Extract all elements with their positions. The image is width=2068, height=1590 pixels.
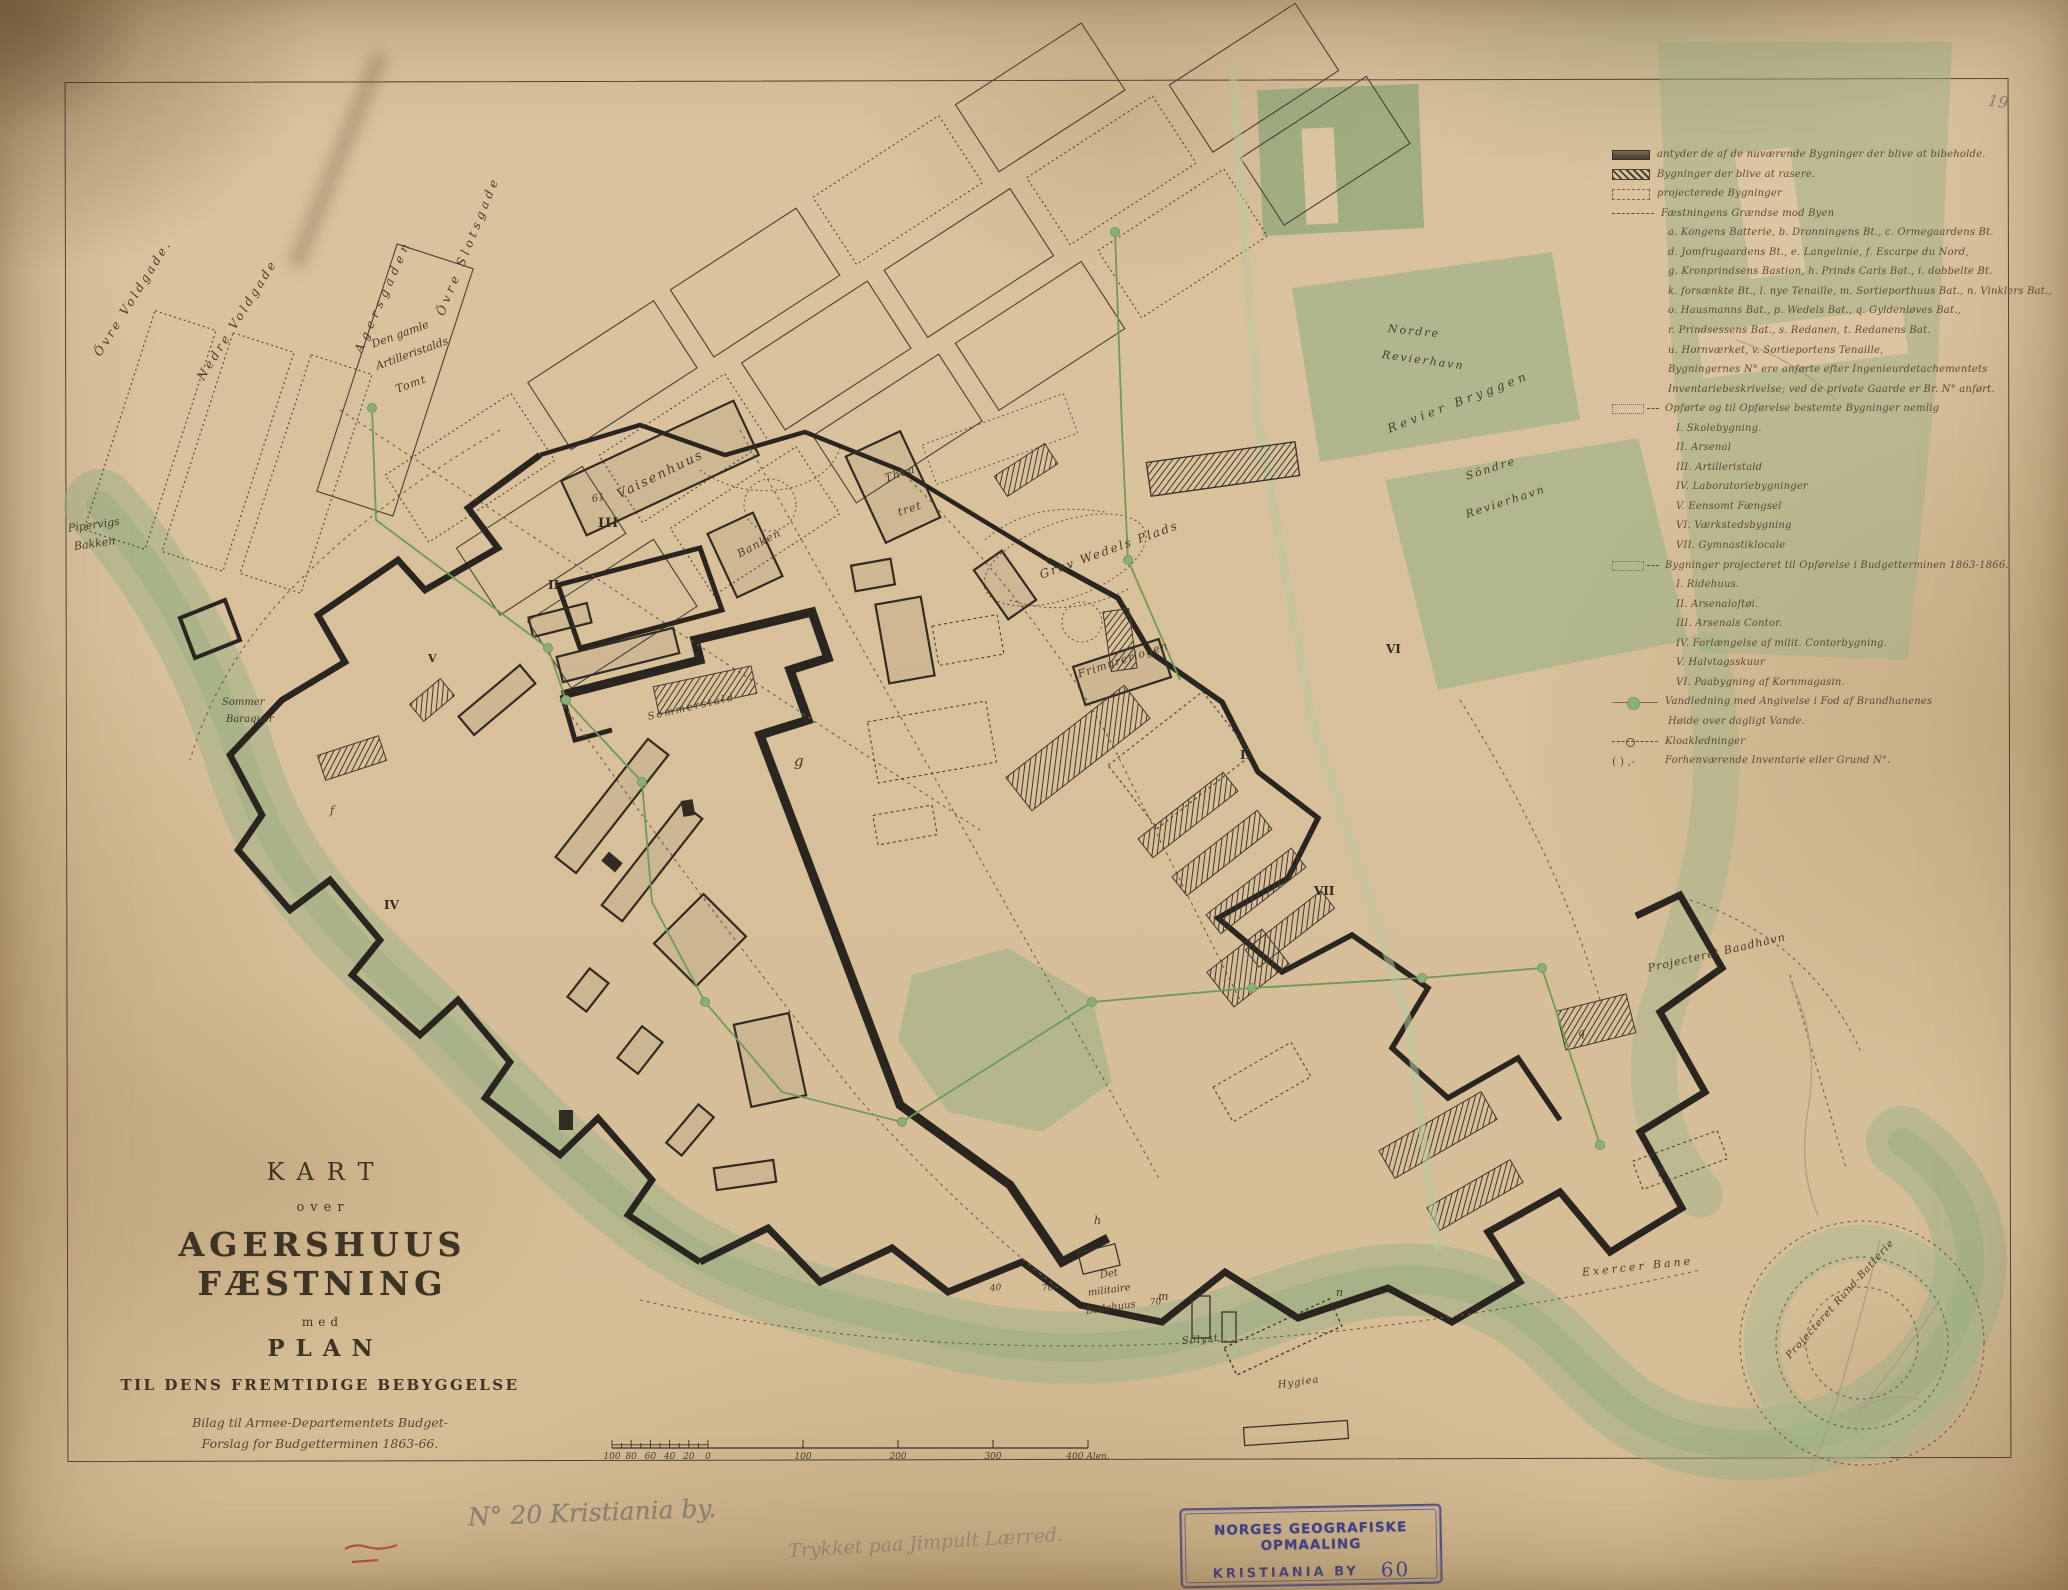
map-label: IV <box>384 898 399 912</box>
legend-row: I. Skolebygning. <box>1612 420 1762 438</box>
hydrant-dot <box>1124 556 1133 565</box>
legend-symbol-sewer <box>1612 741 1658 742</box>
city-block <box>240 355 372 594</box>
city-block <box>670 208 839 357</box>
title-over: over <box>126 1200 520 1215</box>
city-block <box>385 393 554 542</box>
map-label: h <box>1094 1214 1101 1227</box>
legend-text: antyder de af de nuværende Bygninger der… <box>1657 149 1986 161</box>
building-to-raze <box>1556 994 1636 1050</box>
stamp-agency: NORGES GEOGRAFISKE OPMAALING <box>1186 1519 1437 1556</box>
building-to-raze <box>318 736 387 781</box>
map-label: II <box>548 578 559 592</box>
scale-tick-label: 300 <box>984 1452 1001 1462</box>
map-label: I <box>1240 748 1246 762</box>
city-blocks <box>84 0 1410 710</box>
map-label: V <box>428 652 437 665</box>
legend-text: V. Eensomt Fængsel <box>1676 501 1782 513</box>
map-label: f <box>330 804 334 817</box>
building-to-raze <box>410 679 455 722</box>
legend-row: Opførte og til Opførelse bestemte Bygnin… <box>1612 400 1939 418</box>
legend-row: II. Arsenaloftøi. <box>1612 596 1758 614</box>
legend-text: V. Halvtagsskuur <box>1676 657 1765 669</box>
legend-row: VI. Paabygning af Kornmagasin. <box>1612 674 1845 692</box>
scale-tick-label: 20 <box>683 1452 694 1462</box>
scale-tick-label: 400 Alen. <box>1066 1452 1109 1462</box>
building-projected <box>932 615 1004 666</box>
legend-text: Bygninger der blive at rasere. <box>1657 169 1815 181</box>
building-existing <box>974 551 1036 620</box>
title-bilag-line1: Bilag til Armee-Departementets Budget- <box>120 1412 520 1433</box>
map-label: III <box>598 516 619 531</box>
legend-symbol-bar-hatch <box>1612 169 1650 180</box>
map-label: Sommer <box>222 697 265 708</box>
legend-row: Inventariebeskrivelse; ved de private Ga… <box>1612 381 1995 399</box>
legend-text: o. Hausmanns Bat., p. Wedels Bat., q. Gy… <box>1668 305 1961 317</box>
legend-text: Opførte og til Opførelse bestemte Bygnin… <box>1665 403 1939 415</box>
hydrant-dot <box>1088 998 1097 1007</box>
stamp-city: KRISTIANIA BY <box>1213 1564 1359 1582</box>
legend-row: V. Halvtagsskuur <box>1612 654 1765 672</box>
legend-row: u. Hornværket, v. Sortieportens Tenaille… <box>1612 342 1884 360</box>
legend-row: Høide over dagligt Vande. <box>1612 713 1805 731</box>
legend-text: I. Ridehuus. <box>1676 579 1739 591</box>
legend-row: Bygninger der blive at rasere. <box>1612 166 1815 184</box>
building-existing <box>567 968 608 1011</box>
legend-row: Bygningernes N° ere anførte efter Ingeni… <box>1612 361 1988 379</box>
legend-text: IV. Forlængelse af milit. Contorbygning. <box>1676 638 1887 650</box>
legend-text: Forhenværende Inventarie eller Grund N°. <box>1665 755 1890 767</box>
building-existing <box>666 1104 713 1155</box>
scale-tick-label: 40 <box>664 1452 675 1462</box>
legend-text: II. Arsenal <box>1676 442 1731 454</box>
legend-text: Fæstningens Grændse mod Byen <box>1661 208 1834 220</box>
legend-row: III. Artilleristald <box>1612 459 1762 477</box>
building-projected <box>1213 1042 1311 1122</box>
title-med: med <box>125 1315 520 1329</box>
map-label: VII <box>1314 884 1335 898</box>
map-label: 40 <box>990 1283 1002 1294</box>
hydrant-dot <box>1596 1141 1605 1150</box>
hydrant-dot <box>701 998 710 1007</box>
stamp-number: 60 <box>1380 1557 1410 1582</box>
building-existing <box>714 1160 776 1190</box>
legend-row: Bygninger projecteret til Opførelse i Bu… <box>1612 557 2009 575</box>
building-existing <box>846 431 941 542</box>
city-block <box>528 301 697 450</box>
map-label: q <box>1578 1026 1585 1039</box>
archive-stamp: NORGES GEOGRAFISKE OPMAALING KRISTIANIA … <box>1179 1503 1442 1588</box>
legend-text: u. Hornværket, v. Sortieportens Tenaille… <box>1668 345 1884 357</box>
title-kart: KART <box>133 1158 520 1186</box>
building-projected <box>873 805 937 845</box>
title-plan: PLAN <box>131 1335 520 1362</box>
legend-text: II. Arsenaloftøi. <box>1676 599 1758 611</box>
legend-symbol-paren: ( ) ,- <box>1612 755 1658 768</box>
legend-row: o. Hausmanns Bat., p. Wedels Bat., q. Gy… <box>1612 302 1961 320</box>
legend-text: Bygninger projecteret til Opførelse i Bu… <box>1665 560 2009 572</box>
legend-row: I. Ridehuus. <box>1612 576 1739 594</box>
building-existing <box>617 1026 662 1074</box>
legend-text: projecterede Bygninger <box>1657 188 1782 200</box>
map-label: 70 <box>1042 1283 1054 1294</box>
map-label: p <box>1658 1164 1665 1177</box>
legend-row: VI. Værkstedsbygning <box>1612 517 1792 535</box>
legend-symbol-bar-open-dash <box>1612 561 1644 571</box>
map-label: g <box>794 752 804 770</box>
hydrant-dot <box>562 696 571 705</box>
map-label: VI <box>1386 642 1401 656</box>
legend-row: k. forsænkte Bt., l. nye Tenaille, m. So… <box>1612 283 2052 301</box>
hydrant-dot <box>638 778 647 787</box>
legend-text: a. Kongens Batterie, b. Dronningens Bt.,… <box>1668 227 1994 239</box>
legend-text: Inventariebeskrivelse; ved de private Ga… <box>1668 384 1995 396</box>
title-bilag-line2: Forslag for Budgetterminen 1863-66. <box>120 1433 520 1454</box>
title-main: AGERSHUUS FÆSTNING <box>125 1225 520 1303</box>
building-existing <box>601 852 623 873</box>
map-label: n <box>1336 1286 1343 1299</box>
city-block <box>1027 96 1196 245</box>
scale-tick-label: 100 <box>603 1452 620 1462</box>
hydrant-dot <box>1418 974 1427 983</box>
legend-text: VI. Værkstedsbygning <box>1676 520 1792 532</box>
hydrant-dot <box>1248 984 1257 993</box>
scale-tick-label: 200 <box>889 1452 906 1462</box>
legend-row: g. Kronprindsens Bastion, h. Prinds Carl… <box>1612 263 1993 281</box>
city-block <box>162 333 294 572</box>
legend-text: k. forsænkte Bt., l. nye Tenaille, m. So… <box>1668 286 2052 298</box>
building-existing <box>875 597 934 684</box>
legend-symbol-bar-open <box>1612 189 1650 200</box>
legend-row: II. Arsenal <box>1612 439 1731 457</box>
legend-row: antyder de af de nuværende Bygninger der… <box>1612 146 1986 164</box>
legend-row: r. Prindsessens Bat., s. Redanen, t. Red… <box>1612 322 1931 340</box>
title-block: KART over AGERSHUUS FÆSTNING med PLAN TI… <box>120 1158 520 1454</box>
legend-text: IV. Laboratoriebygninger <box>1676 481 1808 493</box>
legend-text: Vandledning med Angivelse i Fod af Brand… <box>1665 696 1932 708</box>
map-sheet: Övre Voldgade.Nedre VoldgadeAgersgadenÖv… <box>0 0 2068 1590</box>
building-projected <box>868 701 997 783</box>
map-label: 70 <box>1150 1297 1162 1308</box>
map-label: Baraquer <box>226 714 274 725</box>
building-existing <box>734 1013 806 1107</box>
legend-text: Høide over dagligt Vande. <box>1668 716 1805 728</box>
building-to-raze <box>1379 1092 1497 1179</box>
legend-text: VII. Gymnastiklocale <box>1676 540 1785 552</box>
legend-row: III. Arsenals Contor. <box>1612 615 1782 633</box>
scale-tick-label: 100 <box>794 1452 811 1462</box>
building-existing <box>528 603 591 637</box>
building-existing <box>851 559 895 592</box>
legend-row: IV. Laboratoriebygninger <box>1612 478 1808 496</box>
city-block <box>884 189 1053 338</box>
legend-text: r. Prindsessens Bat., s. Redanen, t. Red… <box>1668 325 1931 337</box>
red-crayon-mark <box>345 1545 397 1562</box>
legend-text: Kloakledninger <box>1665 736 1745 748</box>
legend-text: g. Kronprindsens Bastion, h. Prinds Carl… <box>1668 266 1993 278</box>
scale-bar <box>612 1440 1088 1448</box>
city-block <box>955 262 1124 411</box>
map-label: 61 <box>591 492 605 505</box>
building-existing <box>559 1110 573 1130</box>
legend-row: VII. Gymnastiklocale <box>1612 537 1785 555</box>
legend-row: IV. Forlængelse af milit. Contorbygning. <box>1612 635 1887 653</box>
scale-tick-label: 60 <box>645 1452 656 1462</box>
legend-row: a. Kongens Batterie, b. Dronningens Bt.,… <box>1612 224 1994 242</box>
legend-text: d. Jomfrugaardens Bt., e. Langelinie, f.… <box>1668 247 1969 259</box>
legend-symbol-water <box>1612 702 1658 703</box>
legend-text: III. Artilleristald <box>1676 462 1762 474</box>
legend-text: Bygningernes N° ere anførte efter Ingeni… <box>1668 364 1988 376</box>
legend-row: ( ) ,-Forhenværende Inventarie eller Gru… <box>1612 752 1890 770</box>
legend-row: Kloakledninger <box>1612 733 1745 751</box>
legend-row: Vandledning med Angivelse i Fod af Brand… <box>1612 693 1932 711</box>
legend-text: I. Skolebygning. <box>1676 423 1762 435</box>
city-block <box>955 23 1124 172</box>
scale-tick-label: 80 <box>625 1452 636 1462</box>
legend-row: V. Eensomt Fængsel <box>1612 498 1782 516</box>
hydrant-dot <box>1111 228 1120 237</box>
title-subtitle: TIL DENS FREMTIDIGE BEBYGGELSE <box>120 1376 520 1394</box>
legend-row: d. Jomfrugaardens Bt., e. Langelinie, f.… <box>1612 244 1969 262</box>
building-existing <box>459 665 536 735</box>
legend-symbol-dash <box>1612 213 1654 214</box>
legend-row: projecterede Bygninger <box>1612 185 1782 203</box>
legend-text: VI. Paabygning af Kornmagasin. <box>1676 677 1845 689</box>
legend-symbol-bar-solid <box>1612 150 1650 160</box>
legend-row: Fæstningens Grændse mod Byen <box>1612 205 1834 223</box>
city-block <box>813 116 982 265</box>
hydrant-dot <box>1538 964 1547 973</box>
legend-text: III. Arsenals Contor. <box>1676 618 1782 630</box>
hydrant-dot <box>898 1118 907 1127</box>
scale-tick-label: 0 <box>705 1452 711 1462</box>
page-number: 19 <box>1987 91 2010 113</box>
building-existing <box>654 894 746 986</box>
hydrant-dot <box>544 644 553 653</box>
legend-symbol-bar-open-dash <box>1612 404 1644 414</box>
hydrant-dot <box>368 404 377 413</box>
city-block <box>742 281 911 430</box>
